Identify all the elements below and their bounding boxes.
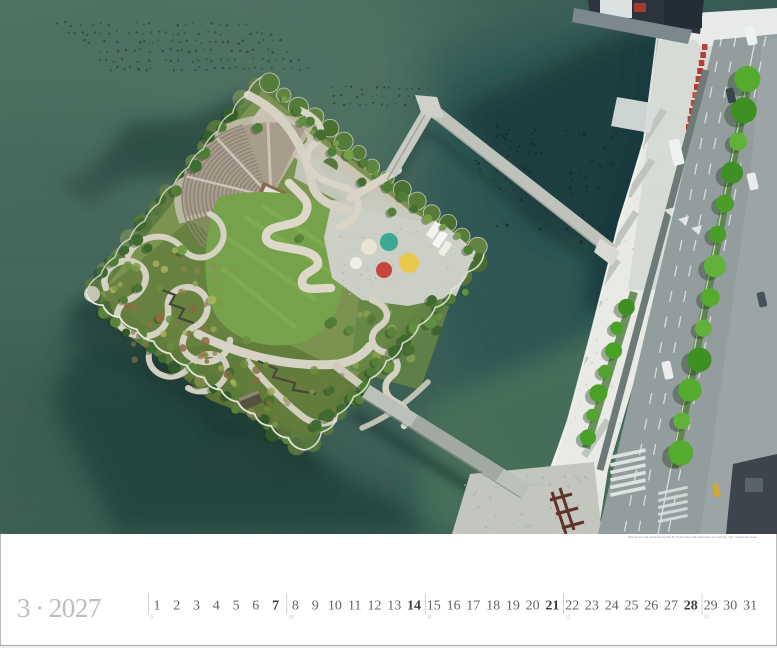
svg-text:21: 21 xyxy=(545,599,559,614)
svg-text:2: 2 xyxy=(173,599,180,614)
svg-text:25: 25 xyxy=(625,599,639,614)
svg-text:7: 7 xyxy=(272,599,279,614)
svg-text:10: 10 xyxy=(328,599,342,614)
svg-text:23: 23 xyxy=(585,599,599,614)
svg-text:24: 24 xyxy=(605,599,619,614)
svg-text:11: 11 xyxy=(348,599,361,614)
svg-text:22: 22 xyxy=(565,599,579,614)
svg-text:18: 18 xyxy=(486,599,500,614)
svg-text:16: 16 xyxy=(447,599,461,614)
svg-text:13: 13 xyxy=(704,616,710,621)
svg-text:27: 27 xyxy=(664,599,678,614)
svg-text:12: 12 xyxy=(368,599,382,614)
svg-text:11: 11 xyxy=(427,616,432,621)
svg-text:9: 9 xyxy=(150,616,153,621)
svg-text:26: 26 xyxy=(644,599,658,614)
svg-text:28: 28 xyxy=(684,599,698,614)
svg-text:15: 15 xyxy=(427,599,441,614)
svg-text:14: 14 xyxy=(407,599,421,614)
svg-text:20: 20 xyxy=(526,599,540,614)
svg-text:6: 6 xyxy=(252,599,259,614)
svg-text:10: 10 xyxy=(289,616,295,621)
svg-text:13: 13 xyxy=(387,599,401,614)
svg-text:12: 12 xyxy=(565,616,571,621)
svg-text:1: 1 xyxy=(154,599,161,614)
svg-text:3: 3 xyxy=(193,599,200,614)
svg-text:30: 30 xyxy=(723,599,737,614)
svg-text:29: 29 xyxy=(704,599,718,614)
svg-text:9: 9 xyxy=(312,599,319,614)
svg-text:31: 31 xyxy=(743,599,757,614)
svg-text:5: 5 xyxy=(233,599,240,614)
svg-text:19: 19 xyxy=(506,599,520,614)
svg-text:17: 17 xyxy=(466,599,480,614)
svg-text:8: 8 xyxy=(292,599,299,614)
svg-text:4: 4 xyxy=(213,599,220,614)
